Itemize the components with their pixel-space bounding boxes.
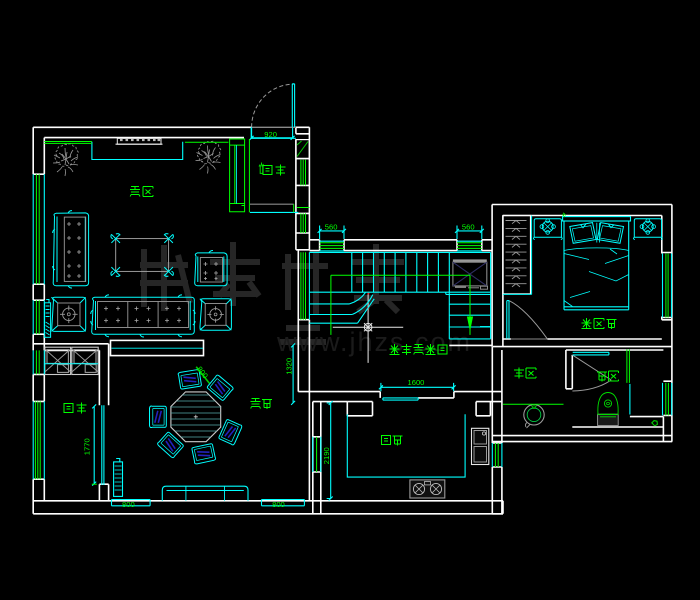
- svg-text:1770: 1770: [83, 438, 92, 455]
- svg-text:920: 920: [264, 130, 277, 139]
- svg-text:2190: 2190: [322, 447, 331, 464]
- svg-text:560: 560: [462, 223, 475, 232]
- svg-text:560: 560: [325, 223, 338, 232]
- svg-text:www.jhzs.com: www.jhzs.com: [276, 327, 472, 357]
- svg-text:1600: 1600: [408, 378, 425, 387]
- svg-text:1320: 1320: [284, 358, 293, 375]
- svg-text:800: 800: [122, 500, 135, 509]
- svg-text:800: 800: [272, 500, 285, 509]
